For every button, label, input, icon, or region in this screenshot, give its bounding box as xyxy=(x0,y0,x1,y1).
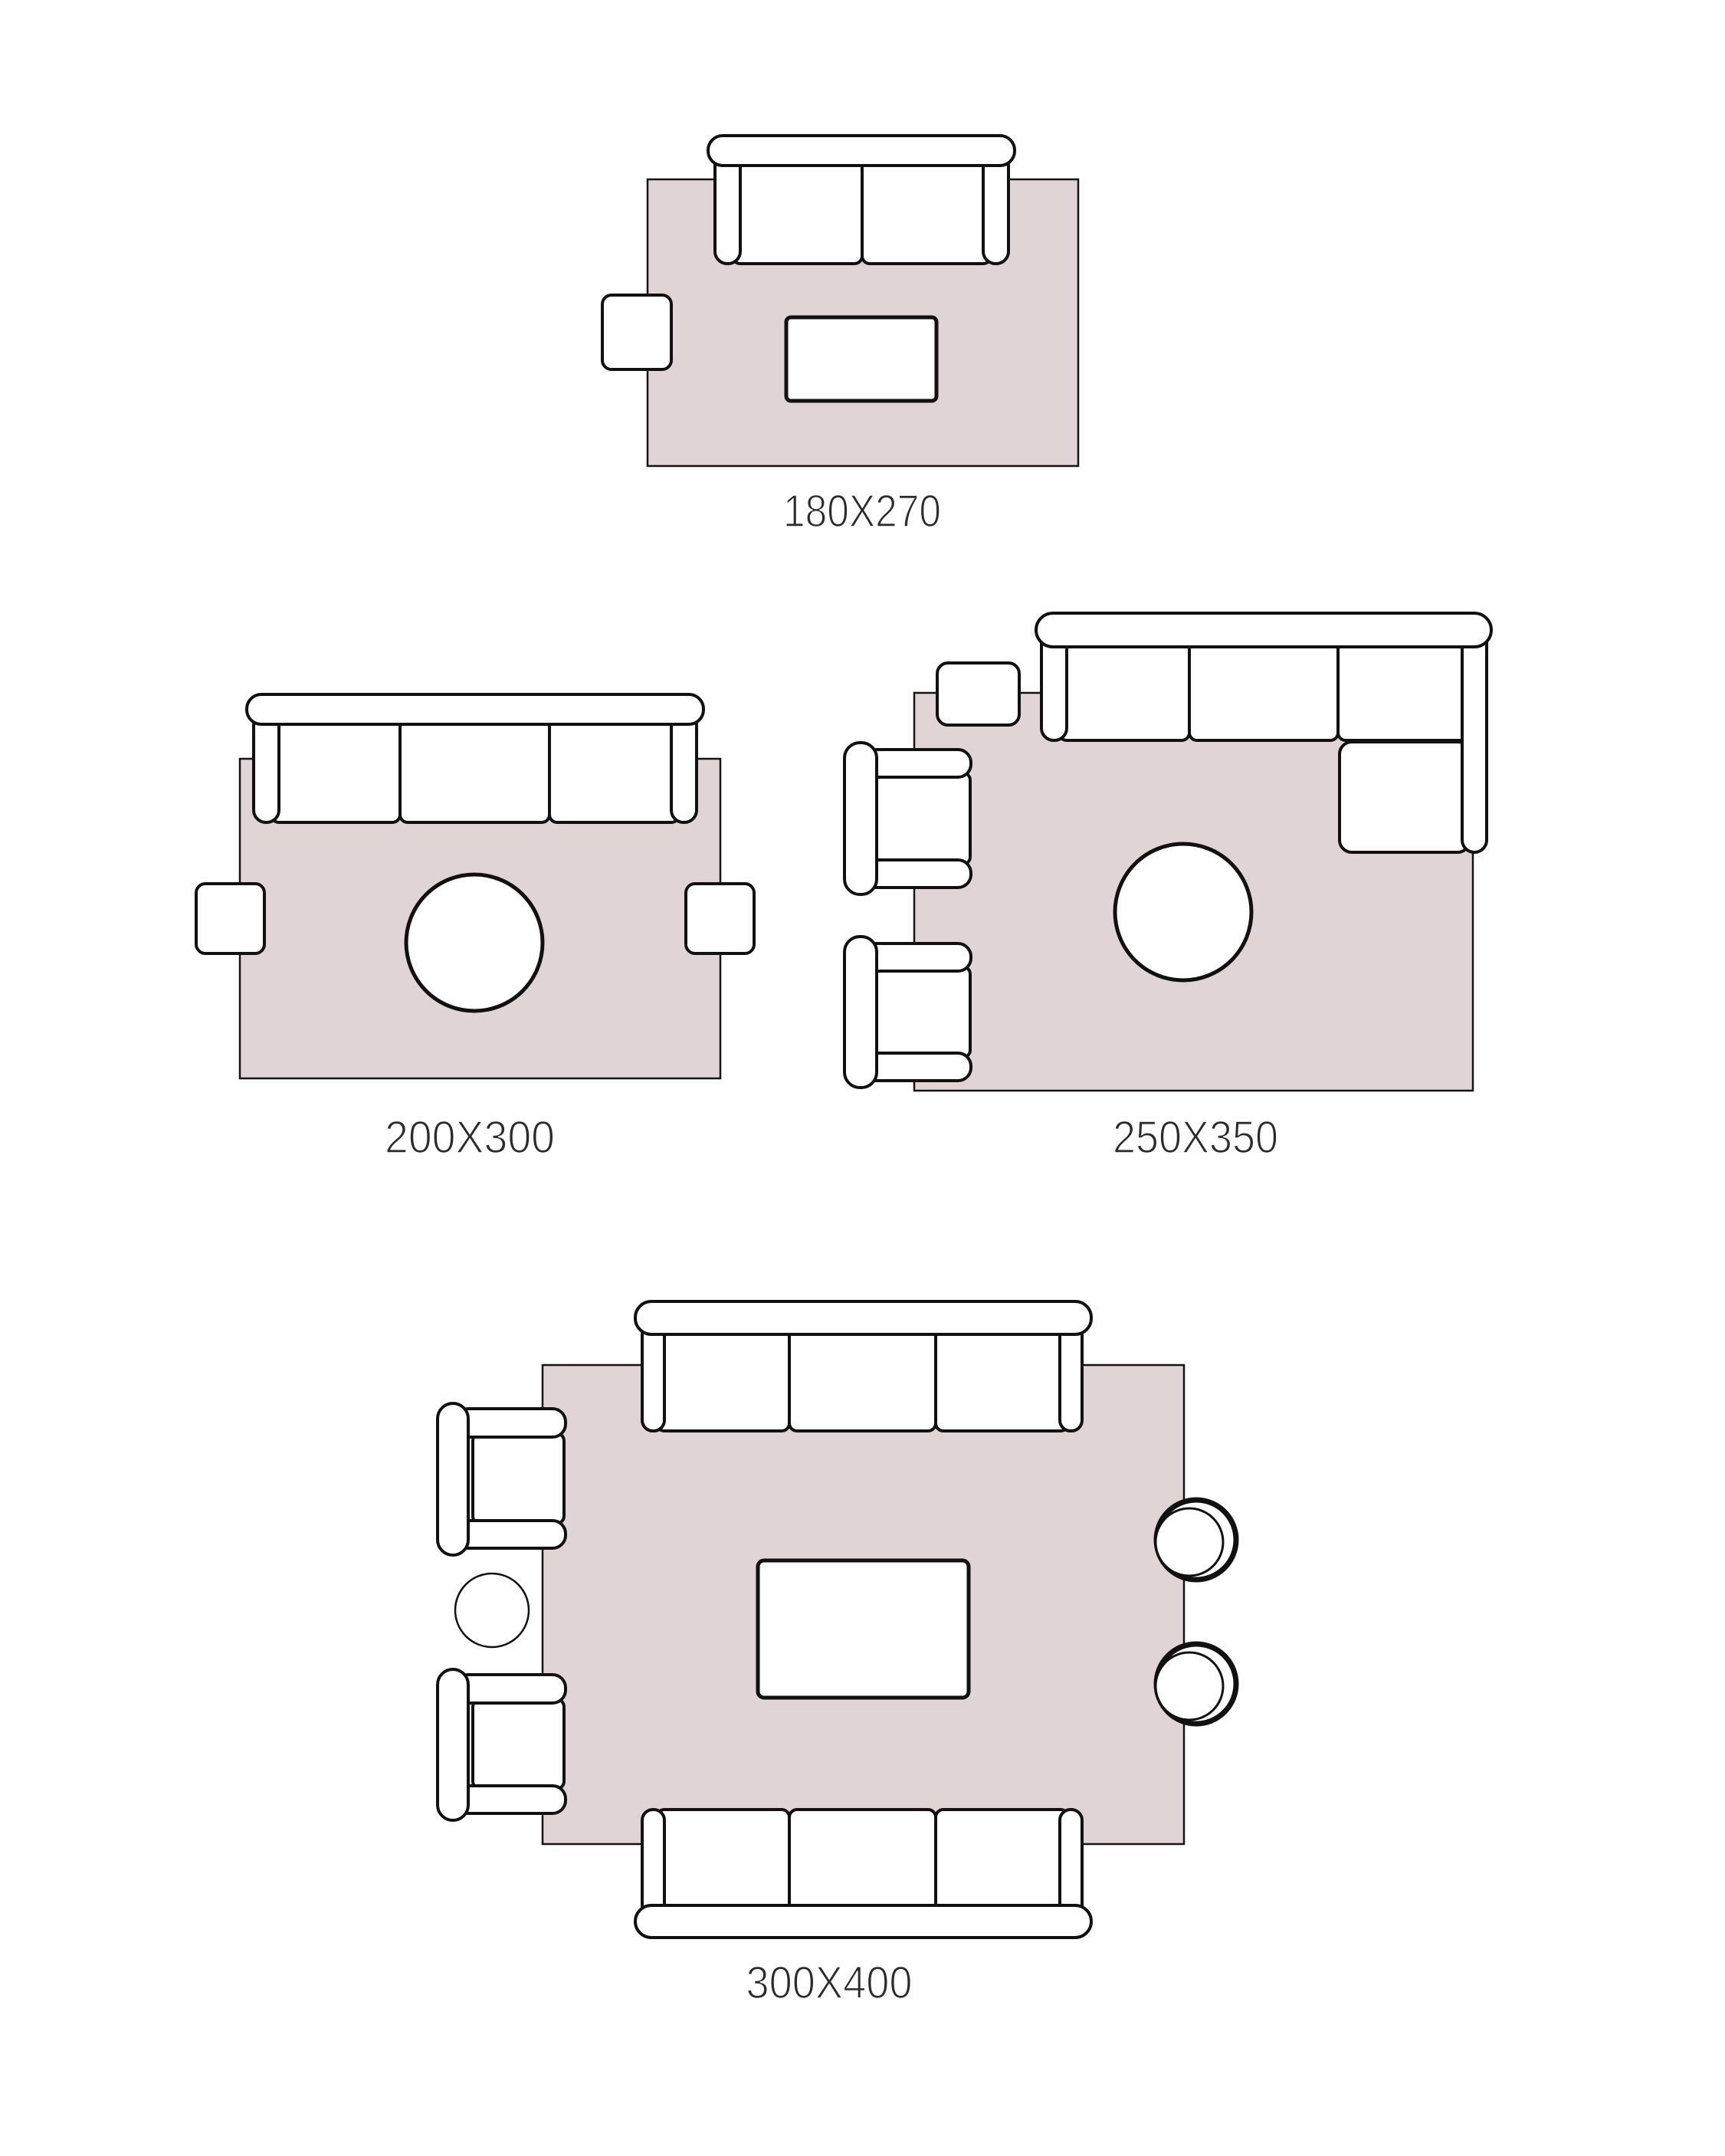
svg-text:200X300: 200X300 xyxy=(385,1112,555,1163)
svg-text:180X270: 180X270 xyxy=(783,486,941,537)
svg-text:300X400: 300X400 xyxy=(746,1957,913,2008)
svg-text:250X350: 250X350 xyxy=(1113,1112,1278,1163)
